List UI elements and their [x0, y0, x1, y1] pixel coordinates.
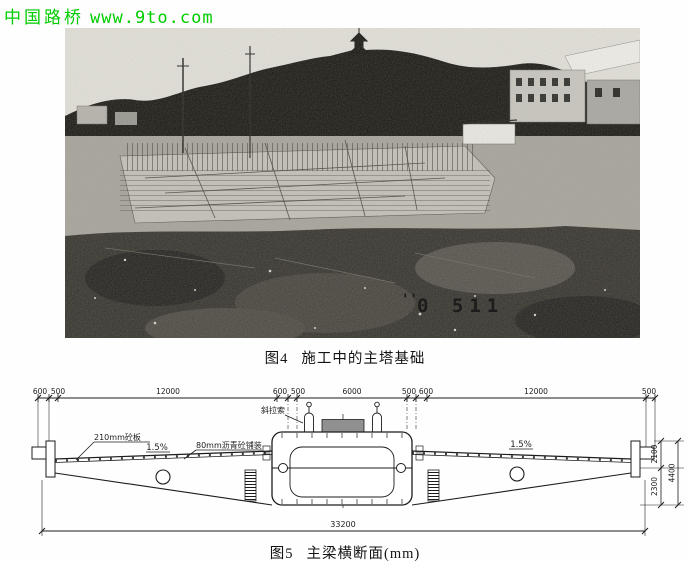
site-watermark: 中国路桥www.9to.com: [4, 3, 214, 28]
dim-label: 600: [273, 387, 288, 396]
right-strut: [428, 470, 439, 501]
dim-label: 500: [291, 387, 306, 396]
left-curb-knob: [32, 447, 46, 459]
bottom-dimension-label: 33200: [330, 520, 355, 529]
dim-label: 500: [51, 387, 66, 396]
dim-label-right-upper: 2100: [650, 444, 659, 463]
dim-label-right-total: 4400: [668, 463, 677, 482]
photo-stamp-marks: '': [401, 292, 418, 308]
dim-label: 6000: [342, 387, 361, 396]
slope-left-label: 1.5%: [146, 443, 168, 453]
figure4-caption: 图4施工中的主塔基础: [0, 347, 690, 368]
construction-photo-canvas: '' 0 511: [65, 28, 640, 338]
left-edge-beam: [46, 441, 55, 477]
dim-label: 500: [642, 387, 657, 396]
girder-cross-section-drawing: 600 500 12000 600 500 6000 500 600 12000…: [0, 378, 690, 540]
site-url: www.9to.com: [90, 8, 214, 28]
pavement-label: 80mm沥青砼铺装: [196, 440, 262, 450]
photo-grain-overlay: [65, 28, 640, 338]
top-dimension-labels: 600 500 12000 600 500 6000 500 600 12000…: [33, 387, 657, 396]
figure5-label: 图5: [270, 546, 294, 561]
figure4-label: 图4: [265, 351, 289, 367]
photo-date-stamp: 0 511: [417, 295, 504, 317]
right-dimension-labels: 2100 2300 4400: [650, 444, 677, 496]
scanned-document-page: 中国路桥www.9to.com: [0, 0, 690, 561]
figure4-title: 施工中的主塔基础: [301, 351, 425, 367]
deck-slab-label: 210mm砼板: [94, 432, 141, 442]
figure5-title: 主梁横断面(mm): [307, 546, 421, 561]
dim-label: 600: [419, 387, 434, 396]
dim-label: 12000: [156, 387, 180, 396]
drawing-canvas: 600 500 12000 600 500 6000 500 600 12000…: [0, 378, 690, 540]
median-barrier: [322, 420, 364, 433]
dim-label: 600: [33, 387, 48, 396]
figure5-caption: 图5主梁横断面(mm): [0, 542, 690, 561]
construction-photo: '' 0 511: [65, 28, 640, 338]
dim-label: 12000: [524, 387, 548, 396]
right-edge-beam: [631, 441, 640, 477]
right-wing: [412, 441, 654, 505]
dim-label: 500: [402, 387, 417, 396]
box-girder: [263, 432, 423, 505]
stay-cable-label: 斜拉索: [261, 405, 285, 415]
left-strut: [245, 470, 256, 501]
slope-right-label: 1.5%: [510, 440, 532, 450]
site-name: 中国路桥: [4, 8, 84, 28]
dim-label-right-lower: 2300: [650, 477, 659, 496]
